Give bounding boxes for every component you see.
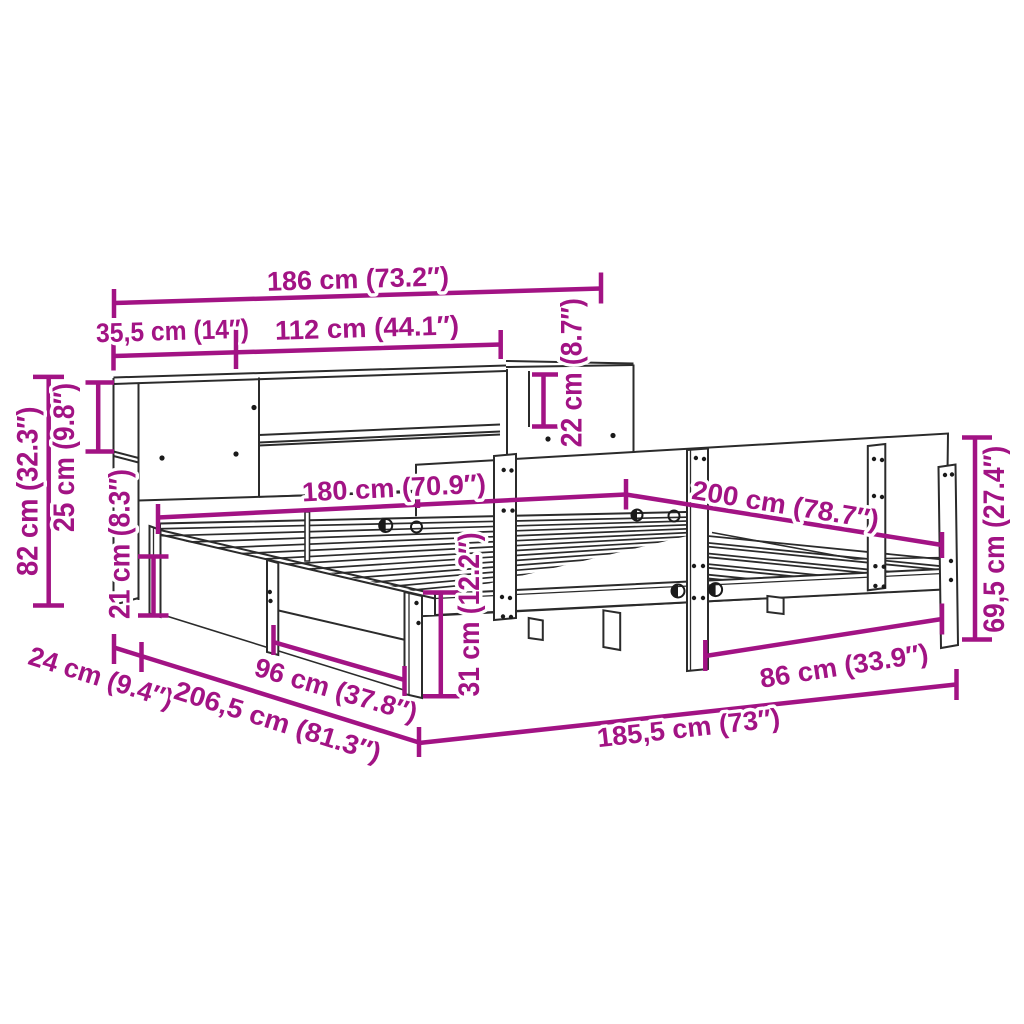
svg-text:69,5 cm (27.4″): 69,5 cm (27.4″) bbox=[978, 446, 1011, 633]
svg-text:35,5 cm (14″): 35,5 cm (14″) bbox=[96, 314, 250, 349]
svg-text:21 cm (8.3″): 21 cm (8.3″) bbox=[104, 469, 137, 619]
svg-text:31 cm (12.2″): 31 cm (12.2″) bbox=[453, 533, 486, 697]
svg-text:82 cm (32.3″): 82 cm (32.3″) bbox=[12, 407, 45, 577]
svg-text:112 cm (44.1″): 112 cm (44.1″) bbox=[275, 310, 460, 345]
svg-text:186 cm (73.2″): 186 cm (73.2″) bbox=[267, 261, 450, 296]
svg-text:25 cm (9.8″): 25 cm (9.8″) bbox=[48, 383, 81, 532]
svg-text:22 cm (8.7″): 22 cm (8.7″) bbox=[556, 298, 589, 447]
